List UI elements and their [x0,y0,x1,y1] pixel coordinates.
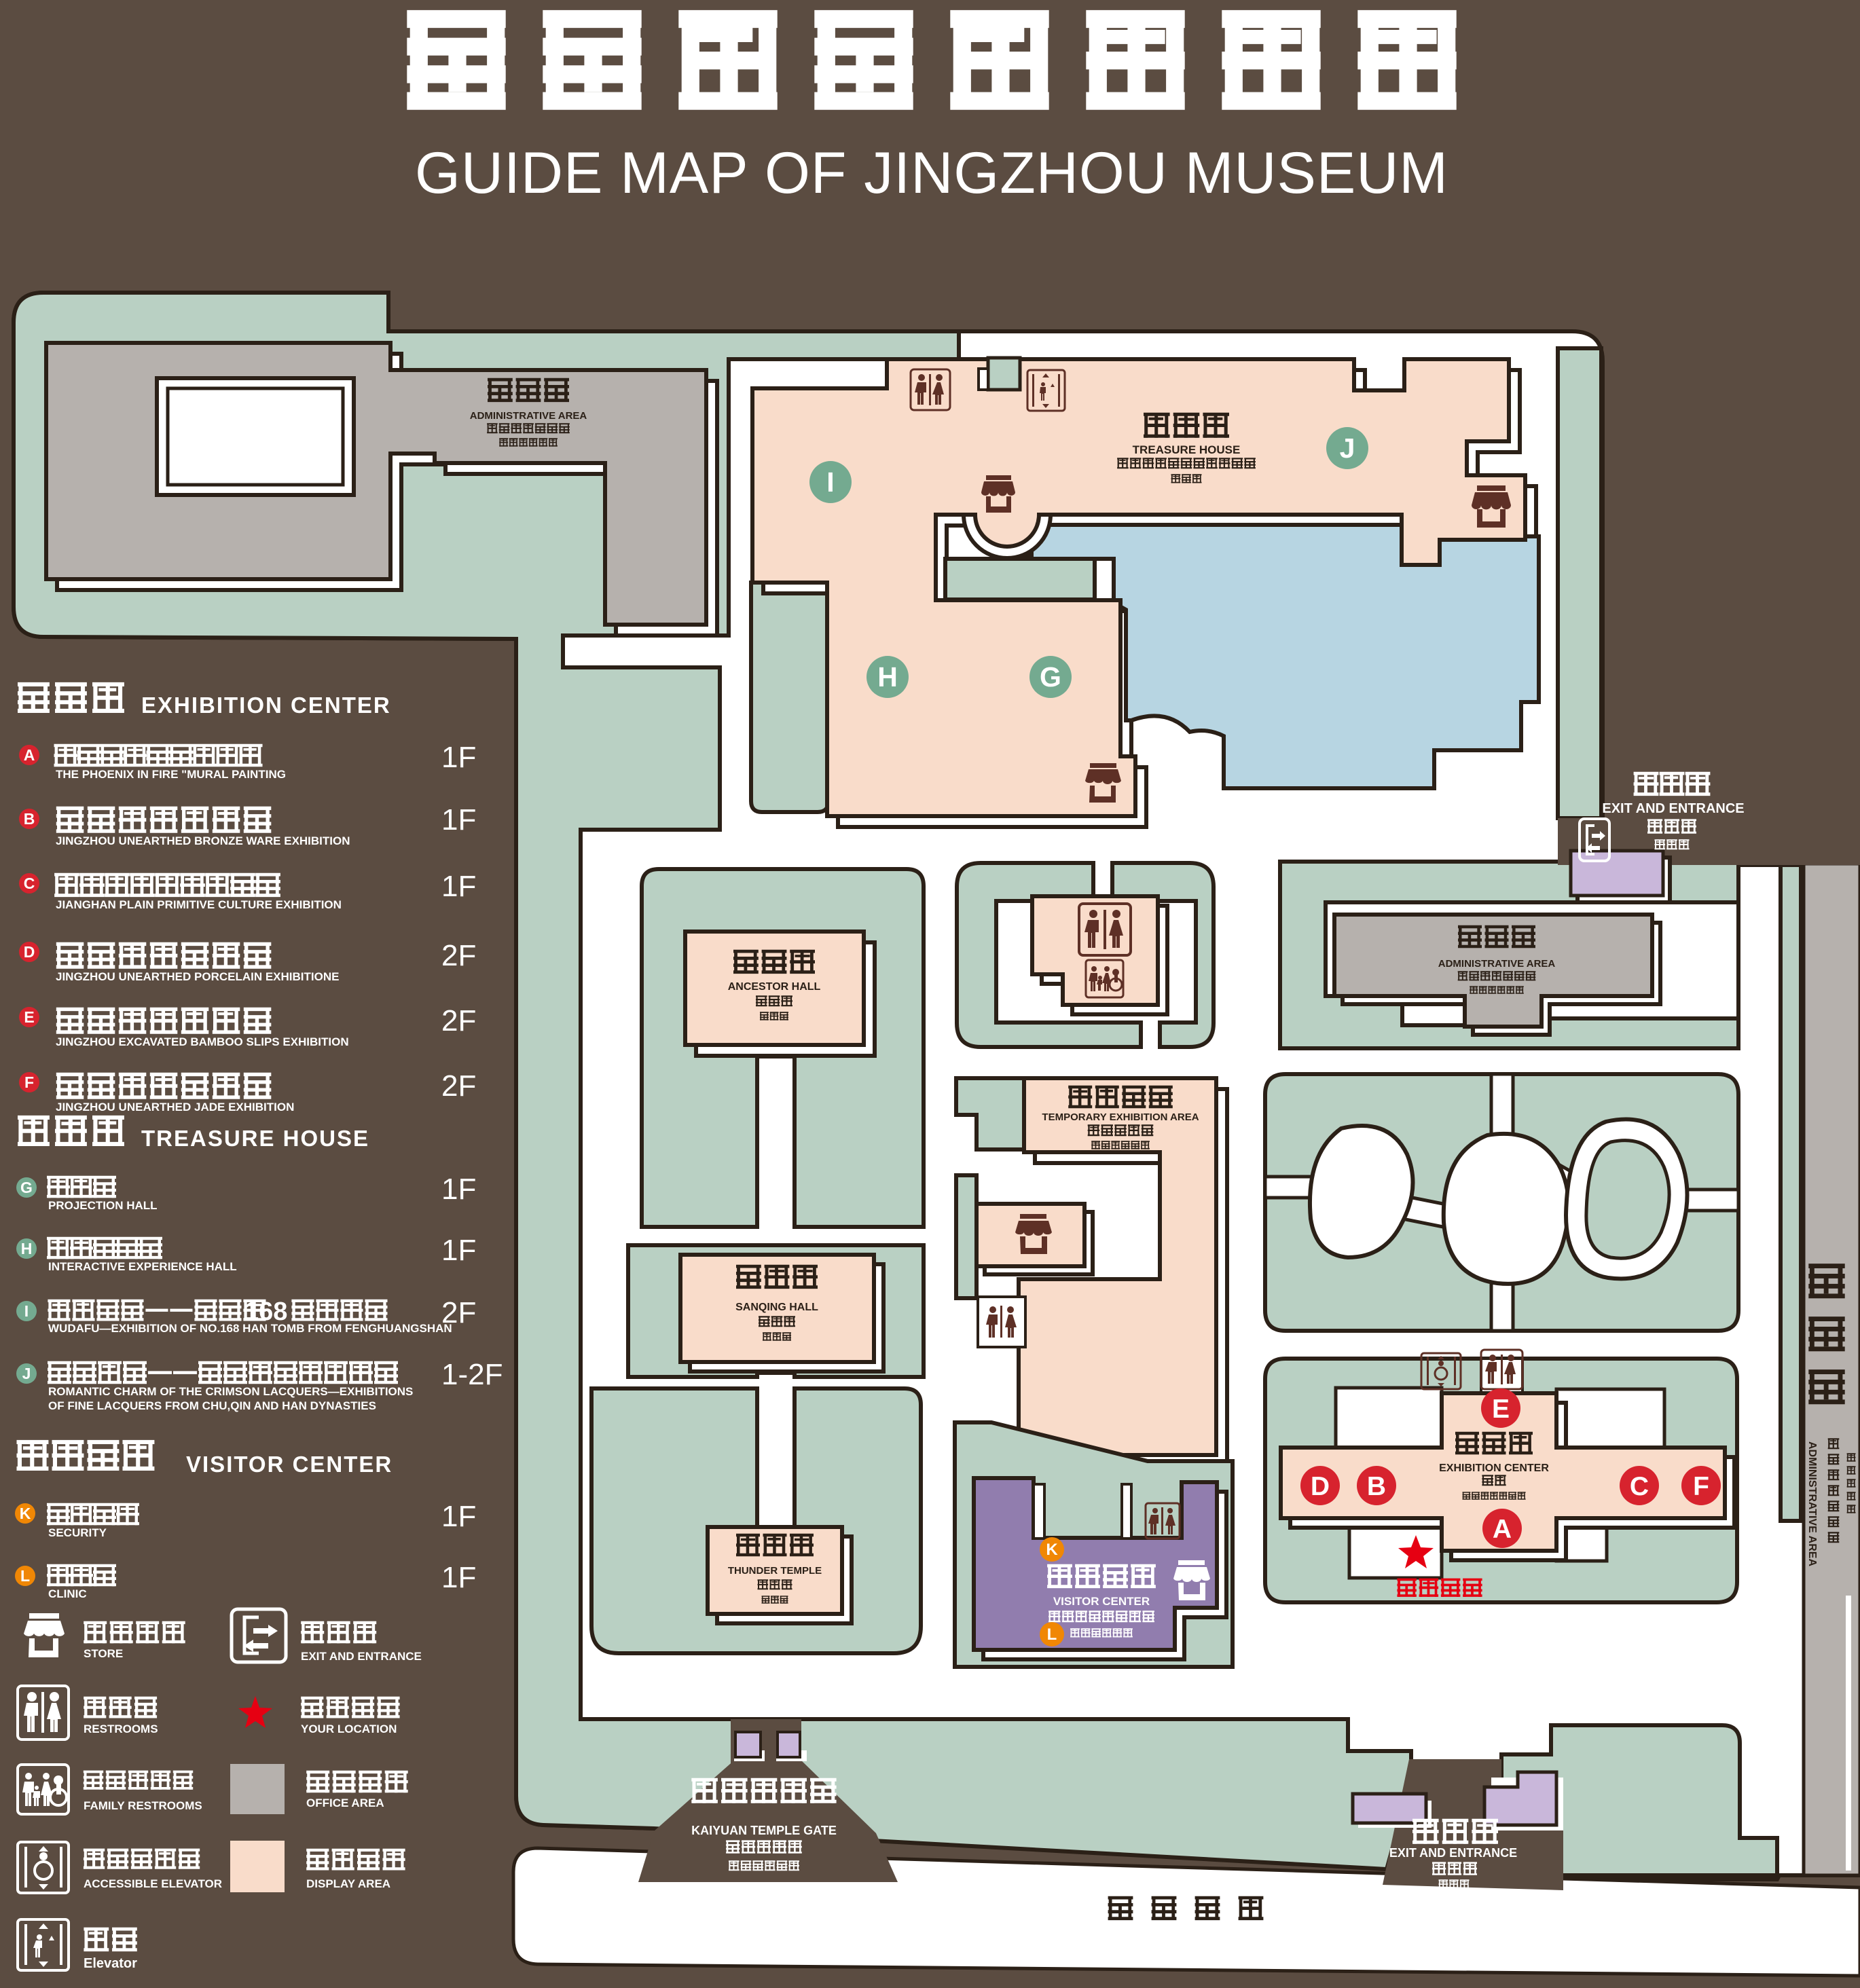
svg-text:GUIDE MAP OF JINGZHOU MUSEUM: GUIDE MAP OF JINGZHOU MUSEUM [415,141,1448,206]
svg-text:JINGZHOU UNEARTHED JADE EXHIBI: JINGZHOU UNEARTHED JADE EXHIBITION [56,1101,294,1113]
svg-text:CLINIC: CLINIC [48,1587,87,1600]
svg-text:1F: 1F [441,870,476,903]
svg-text:1-2F: 1-2F [441,1358,503,1391]
svg-text:1F: 1F [441,1234,476,1267]
svg-text:VISITOR CENTER: VISITOR CENTER [1053,1595,1150,1608]
svg-text:STORE: STORE [84,1647,123,1660]
svg-text:EXHIBITION CENTER: EXHIBITION CENTER [141,693,391,718]
svg-text:L: L [20,1567,30,1585]
svg-text:2F: 2F [441,939,476,972]
svg-text:JINGZHOU UNEARTHED PORCELAIN E: JINGZHOU UNEARTHED PORCELAIN EXHIBITIONE [56,970,339,983]
svg-text:KAIYUAN TEMPLE GATE: KAIYUAN TEMPLE GATE [691,1824,837,1837]
svg-text:EXHIBITION CENTER: EXHIBITION CENTER [1439,1462,1549,1474]
svg-text:TEMPORARY EXHIBITION AREA: TEMPORARY EXHIBITION AREA [1042,1111,1199,1123]
svg-text:F: F [24,1073,34,1091]
svg-text:B: B [1367,1472,1386,1501]
svg-text:2F: 2F [441,1004,476,1037]
svg-text:E: E [1492,1395,1510,1424]
svg-text:C: C [24,875,35,892]
svg-text:EXIT AND ENTRANCE: EXIT AND ENTRANCE [1602,801,1744,816]
svg-text:ADMINISTRATIVE AREA: ADMINISTRATIVE AREA [1806,1441,1818,1566]
svg-text:WUDAFU—EXHIBITION OF NO.168 HA: WUDAFU—EXHIBITION OF NO.168 HAN TOMB FRO… [48,1322,452,1335]
svg-text:A: A [1493,1515,1512,1544]
svg-text:A: A [24,746,35,764]
svg-text:1F: 1F [441,1561,476,1594]
svg-text:J: J [1340,432,1355,464]
svg-text:SECURITY: SECURITY [48,1526,107,1539]
svg-text:D: D [24,943,35,961]
svg-text:OF FINE LACQUERS FROM CHU,QIN: OF FINE LACQUERS FROM CHU,QIN AND HAN DY… [48,1399,376,1412]
svg-text:ACCESSIBLE ELEVATOR: ACCESSIBLE ELEVATOR [84,1877,222,1890]
svg-text:RESTROOMS: RESTROOMS [84,1723,158,1735]
svg-text:H: H [21,1240,33,1257]
svg-text:1F: 1F [441,741,476,774]
svg-text:ADMINISTRATIVE AREA: ADMINISTRATIVE AREA [470,410,587,422]
svg-text:EXIT AND ENTRANCE: EXIT AND ENTRANCE [1389,1846,1517,1860]
svg-text:J: J [22,1365,31,1382]
svg-text:JINGZHOU UNEARTHED BRONZE WARE: JINGZHOU UNEARTHED BRONZE WARE EXHIBITIO… [56,834,350,847]
svg-text:G: G [1040,661,1061,693]
svg-text:YOUR LOCATION: YOUR LOCATION [301,1723,397,1735]
svg-text:C: C [1630,1472,1649,1501]
svg-text:1F: 1F [441,1500,476,1533]
svg-text:PROJECTION HALL: PROJECTION HALL [48,1199,158,1212]
svg-text:JIANGHAN PLAIN PRIMITIVE CULTU: JIANGHAN PLAIN PRIMITIVE CULTURE EXHIBIT… [56,898,342,911]
svg-text:F: F [1693,1472,1709,1501]
svg-text:G: G [20,1179,33,1196]
svg-text:TREASURE HOUSE: TREASURE HOUSE [1133,443,1241,456]
svg-text:H: H [877,661,898,693]
svg-text:1F: 1F [441,803,476,836]
svg-text:2F: 2F [441,1296,476,1329]
svg-text:VISITOR CENTER: VISITOR CENTER [186,1452,393,1477]
svg-text:FAMILY RESTROOMS: FAMILY RESTROOMS [84,1799,202,1812]
svg-text:ROMANTIC CHARM OF THE CRIMSON: ROMANTIC CHARM OF THE CRIMSON LACQUERS—E… [48,1385,413,1398]
svg-text:TREASURE HOUSE: TREASURE HOUSE [141,1126,369,1151]
svg-text:Elevator: Elevator [84,1956,137,1971]
svg-text:K: K [20,1505,31,1522]
svg-text:K: K [1046,1541,1058,1559]
svg-text:OFFICE AREA: OFFICE AREA [306,1797,384,1809]
svg-text:DISPLAY AREA: DISPLAY AREA [306,1877,390,1890]
svg-text:JINGZHOU EXCAVATED BAMBOO SLIP: JINGZHOU EXCAVATED BAMBOO SLIPS EXHIBITI… [56,1035,349,1048]
svg-text:L: L [1047,1625,1057,1644]
svg-text:ADMINISTRATIVE AREA: ADMINISTRATIVE AREA [1438,958,1556,970]
svg-text:D: D [1311,1472,1330,1501]
svg-text:ANCESTOR HALL: ANCESTOR HALL [728,981,821,993]
svg-text:SANQING HALL: SANQING HALL [735,1302,818,1313]
svg-text:1F: 1F [441,1173,476,1206]
svg-text:I: I [24,1302,29,1320]
svg-text:2F: 2F [441,1069,476,1103]
svg-text:THE PHOENIX IN FIRE "MURAL PAI: THE PHOENIX IN FIRE "MURAL PAINTING [56,768,286,781]
svg-text:THUNDER TEMPLE: THUNDER TEMPLE [728,1565,822,1577]
svg-text:E: E [24,1008,34,1026]
svg-text:I: I [826,466,834,498]
svg-text:INTERACTIVE EXPERIENCE HALL: INTERACTIVE EXPERIENCE HALL [48,1260,237,1273]
svg-text:EXIT AND ENTRANCE: EXIT AND ENTRANCE [301,1650,422,1663]
svg-text:B: B [24,810,35,828]
